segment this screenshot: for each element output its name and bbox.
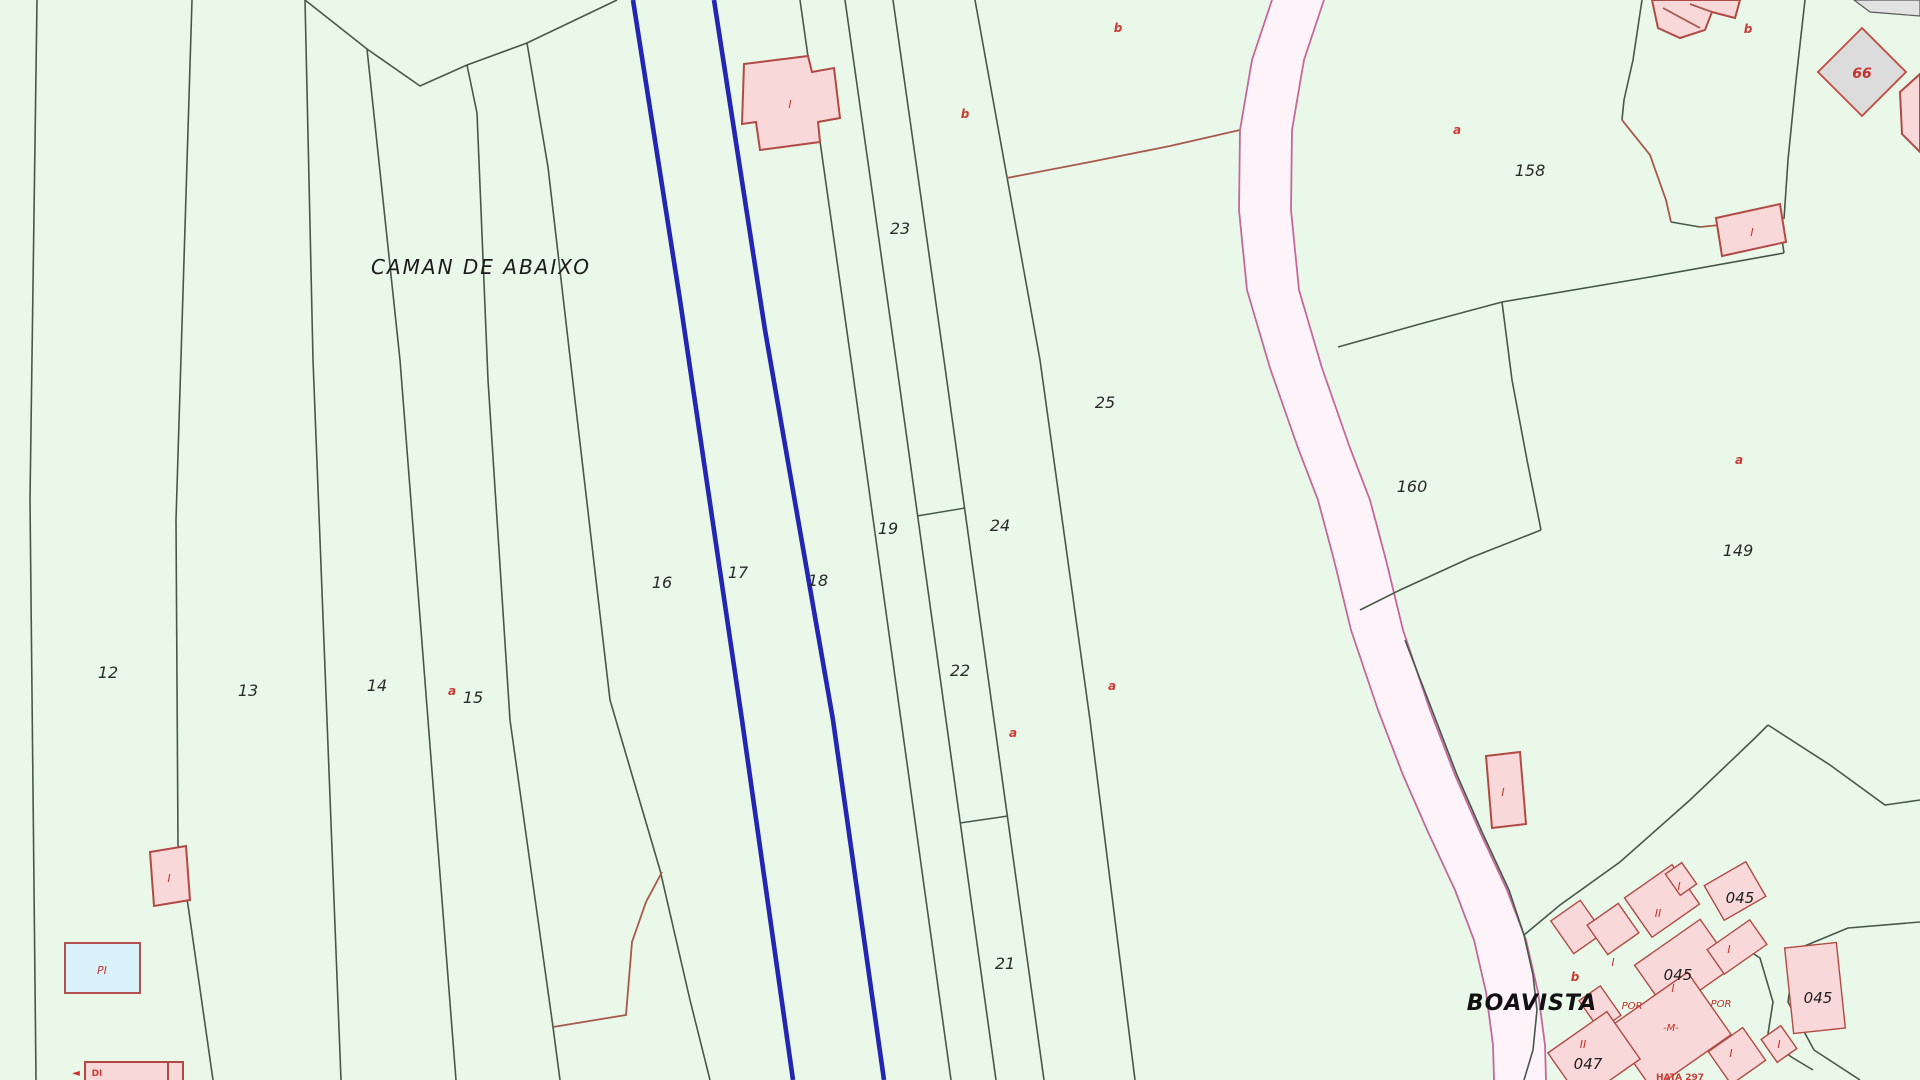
subparcel-letter-a-25: a <box>1108 679 1116 693</box>
parcel-label-21: 21 <box>995 954 1015 973</box>
building-label-i-v11: I <box>1729 1047 1732 1060</box>
building-label-i-66-diamond: 66 <box>1852 66 1872 82</box>
building-label-i-v2: I <box>1611 956 1614 969</box>
parcel-boundaries-central <box>800 0 1135 1080</box>
parcel-label-24: 24 <box>990 516 1010 535</box>
parcel-label-158: 158 <box>1515 161 1546 180</box>
building-west-village-icon <box>1486 752 1526 828</box>
building-label-m-v8: -M- <box>1663 1023 1679 1034</box>
subparcel-letter-a-149: a <box>1735 453 1743 467</box>
building-label-i-top-left-building: I <box>788 98 791 111</box>
place-label-boavista: BOAVISTA <box>1467 991 1597 1016</box>
subparcel-letter-b-158: b <box>1744 22 1753 36</box>
urban-parcel-label-047: 047 <box>1574 1055 1603 1073</box>
cadastral-map[interactable]: CAMAN DE ABAIXOBOAVISTA12131415161718192… <box>0 0 1920 1080</box>
subparcel-letter-a-15: a <box>448 684 456 698</box>
building-label-por-2: POR <box>1711 999 1732 1010</box>
building-label-tiny-bottom-left: DI <box>92 1069 103 1079</box>
parcel-label-149: 149 <box>1723 541 1754 560</box>
parcel-label-23: 23 <box>890 219 910 238</box>
buildings <box>65 0 1920 1080</box>
road-surface <box>1239 0 1546 1080</box>
parcel-boundaries-west <box>30 0 710 1080</box>
parcel-label-160: 160 <box>1397 477 1428 496</box>
subparcel-letter-b-25: b <box>1114 21 1123 35</box>
parcel-label-19: 19 <box>878 519 898 538</box>
parcel-label-15: 15 <box>463 688 483 707</box>
parcel-label-14: 14 <box>367 676 387 695</box>
building-label-pi-deposit: PI <box>97 964 107 977</box>
parcel-label-12: 12 <box>98 663 118 682</box>
building-label-ii-v3: II <box>1655 907 1662 920</box>
parcel-label-13: 13 <box>238 681 258 700</box>
building-right-edge-partial-icon <box>1900 74 1920 152</box>
urban-parcel-label-045-c: 045 <box>1804 989 1833 1007</box>
building-label-ii-v10: II <box>1580 1038 1587 1051</box>
urban-parcel-label-045-b: 045 <box>1664 966 1693 984</box>
cadastral-map-viewport[interactable]: CAMAN DE ABAIXOBOAVISTA12131415161718192… <box>0 0 1920 1080</box>
building-corner-gray-icon <box>1854 0 1920 16</box>
building-label-i-v12: I <box>1777 1038 1780 1051</box>
place-label-caman-de-abaixo: CAMAN DE ABAIXO <box>371 255 591 279</box>
parcel-label-22: 22 <box>950 661 970 680</box>
building-label-i-v3b: I <box>1677 880 1680 893</box>
building-label-i-v5: I <box>1727 943 1730 956</box>
subparcel-letter-a-24: a <box>1009 726 1017 740</box>
subparcel-letter-b-24: b <box>961 107 970 121</box>
building-label-i-east-building: I <box>1750 226 1753 239</box>
parcel-label-16: 16 <box>652 573 672 592</box>
subparcel-letter-a-158: a <box>1453 123 1461 137</box>
subparcel-letter-b-village: b <box>1571 970 1580 984</box>
road <box>1239 0 1546 1080</box>
building-label-arrow-bottom-left: ◄ <box>72 1068 80 1079</box>
urban-parcel-label-045-a: 045 <box>1726 889 1755 907</box>
parcel-label-17: 17 <box>728 563 749 582</box>
building-label-i-v4: I <box>1671 982 1674 995</box>
building-label-por-1: POR <box>1622 1001 1643 1012</box>
building-label-i-west-village-building: I <box>1501 786 1504 799</box>
parcel-label-18: 18 <box>808 571 828 590</box>
parcel-label-25: 25 <box>1095 393 1115 412</box>
village-buildings <box>1548 862 1845 1080</box>
building-label-tiny-village-bottom: HATA 297 <box>1656 1073 1704 1080</box>
building-label-i-left-bottom-building: I <box>167 872 170 885</box>
